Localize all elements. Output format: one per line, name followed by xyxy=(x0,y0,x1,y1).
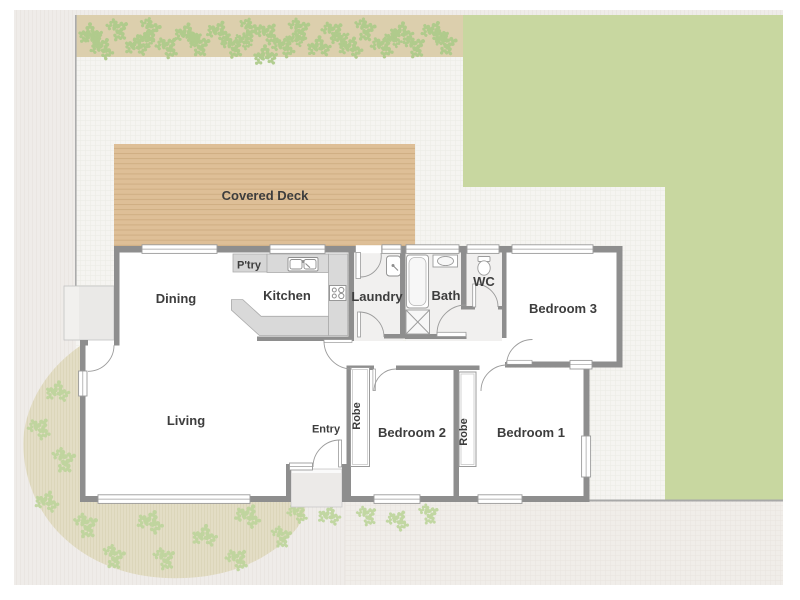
svg-text:Kitchen: Kitchen xyxy=(263,288,311,303)
svg-text:Living: Living xyxy=(167,413,205,428)
svg-text:Robe: Robe xyxy=(351,402,363,430)
svg-text:Bedroom 1: Bedroom 1 xyxy=(497,425,565,440)
svg-text:Entry: Entry xyxy=(312,424,341,436)
svg-text:Dining: Dining xyxy=(156,291,196,306)
svg-text:Covered Deck: Covered Deck xyxy=(222,188,309,203)
svg-text:Robe: Robe xyxy=(458,418,470,446)
svg-text:Laundry: Laundry xyxy=(351,289,403,304)
svg-text:Bedroom 3: Bedroom 3 xyxy=(529,301,597,316)
svg-text:WC: WC xyxy=(473,274,495,289)
svg-text:P'try: P'try xyxy=(237,260,262,272)
svg-text:Bath: Bath xyxy=(432,288,461,303)
svg-text:Bedroom 2: Bedroom 2 xyxy=(378,425,446,440)
